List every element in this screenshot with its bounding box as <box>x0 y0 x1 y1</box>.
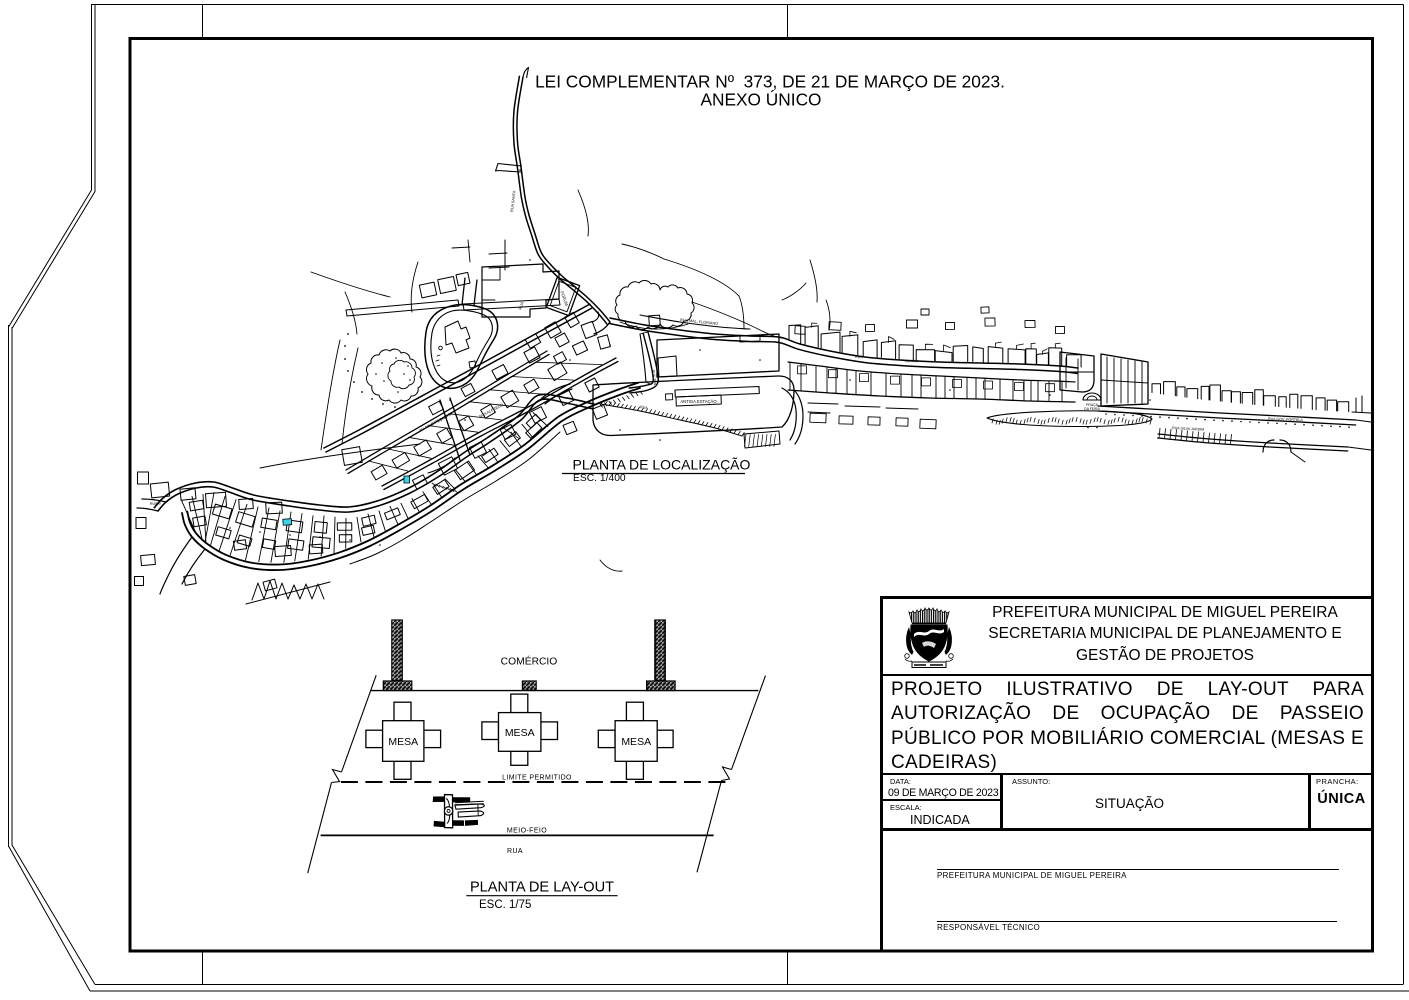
svg-text:RUA B: RUA B <box>150 501 162 506</box>
svg-text:RUA: RUA <box>640 405 649 410</box>
svg-text:RUA SILVA JARDIM: RUA SILVA JARDIM <box>1172 426 1204 432</box>
svg-text:RUA: RUA <box>518 301 524 310</box>
svg-text:ANEXO ÚNICO: ANEXO ÚNICO <box>701 90 822 110</box>
svg-text:ESC. 1/75: ESC. 1/75 <box>479 899 531 911</box>
svg-text:MESA: MESA <box>621 736 651 748</box>
svg-text:MESA: MESA <box>505 727 535 739</box>
svg-text:COMÉRCIO: COMÉRCIO <box>501 655 558 668</box>
svg-text:RUA: RUA <box>507 848 523 855</box>
svg-text:PLANTA DE LAY-OUT: PLANTA DE LAY-OUT <box>470 880 614 896</box>
svg-text:LIMITE PERMITIDO: LIMITE PERMITIDO <box>502 775 572 782</box>
svg-text:ANTIGA ESTAÇÃO: ANTIGA ESTAÇÃO <box>680 399 717 404</box>
svg-text:FORUM: FORUM <box>559 290 569 307</box>
svg-text:MEIO-FEIO: MEIO-FEIO <box>507 828 547 835</box>
svg-text:PLANTA DE LOCALIZAÇÃO: PLANTA DE LOCALIZAÇÃO <box>573 457 751 473</box>
svg-text:ESC. 1/400: ESC. 1/400 <box>573 473 626 484</box>
svg-text:MESA: MESA <box>388 736 418 748</box>
svg-text:RUA GOV. PORTELA: RUA GOV. PORTELA <box>1268 417 1303 422</box>
svg-text:RUA SANTA: RUA SANTA <box>510 190 517 212</box>
svg-text:LUMIAR: LUMIAR <box>905 359 919 363</box>
svg-text:RUA: RUA <box>855 355 863 359</box>
svg-text:LEI COMPLEMENTAR Nº 373, DE 2: LEI COMPLEMENTAR Nº 373, DE 21 DE MARÇO … <box>535 72 1005 92</box>
